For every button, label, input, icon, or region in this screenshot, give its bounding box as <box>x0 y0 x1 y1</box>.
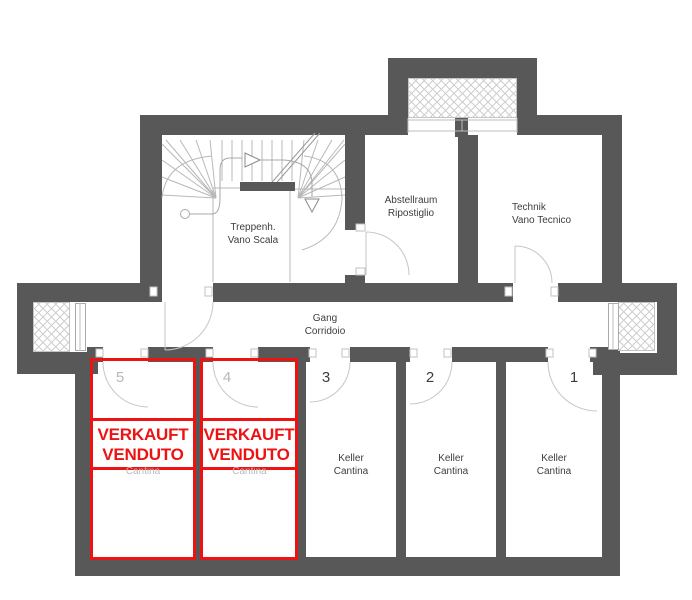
wall-segment <box>517 78 537 135</box>
sold-badge-line: VENDUTO <box>203 445 295 465</box>
room-label-line: Keller <box>406 452 496 465</box>
room-label-line: Ripostiglio <box>355 207 467 220</box>
room-label-stairwell: Treppenh. Vano Scala <box>183 221 323 247</box>
room-label-line: Treppenh. <box>183 221 323 234</box>
door-arc-stairwell-corridor <box>165 302 213 350</box>
stair-up-arrow-icon <box>245 153 260 167</box>
wall-segment <box>140 135 162 302</box>
wall-segment <box>388 58 537 78</box>
door-arc-storage <box>366 232 409 275</box>
wall-segment <box>602 353 620 576</box>
wall-segment <box>455 115 468 137</box>
lightwell-hatch-right <box>618 302 655 351</box>
room-label-line: Vano Scala <box>183 234 323 247</box>
wall-segment <box>496 347 506 557</box>
room-label-cellar-3: Keller Cantina <box>306 452 396 478</box>
wall-segment <box>213 283 513 302</box>
room-label-cellar-2: Keller Cantina <box>406 452 496 478</box>
stair-walk-line <box>181 158 313 219</box>
stair-treads <box>162 133 345 282</box>
room-label-line: Cantina <box>406 465 496 478</box>
room-label-corridor: Gang Corridoio <box>280 312 370 338</box>
sold-badge-line: VENDUTO <box>93 445 193 465</box>
sold-badge-room5: VERKAUFT VENDUTO <box>90 418 196 470</box>
room-label-technical: Technik Vano Tecnico <box>512 201 612 227</box>
room-number-2: 2 <box>419 370 441 386</box>
floor-plan: Treppenh. Vano Scala Abstellraum Riposti… <box>0 0 692 600</box>
lightwell-hatch-top <box>408 78 517 118</box>
room-label-line: Vano Tecnico <box>512 214 612 227</box>
room-label-cellar-1: Keller Cantina <box>509 452 599 478</box>
room-label-line: Keller <box>306 452 396 465</box>
room-label-cellar-4-partial: Cantina <box>203 466 296 478</box>
wall-segment <box>537 115 622 135</box>
stair-landing-edge <box>240 182 295 191</box>
lightwell-hatch-left <box>33 302 70 352</box>
wall-segment <box>140 115 388 135</box>
room-label-cellar-5-partial: Cantina <box>93 466 193 478</box>
wall-segment <box>657 283 677 375</box>
sold-badge-room4: VERKAUFT VENDUTO <box>200 418 298 470</box>
room-number-3: 3 <box>315 370 337 386</box>
stair-down-arrow-icon <box>305 199 319 212</box>
room-label-line: Technik <box>512 201 612 214</box>
wall-segment <box>388 78 408 135</box>
window-symbol-left <box>75 303 86 351</box>
sold-badge-line: VERKAUFT <box>93 425 193 445</box>
sold-badge-line: VERKAUFT <box>203 425 295 445</box>
room-label-line: Cantina <box>306 465 396 478</box>
wall-segment <box>396 347 406 557</box>
room-label-storage: Abstellraum Ripostiglio <box>355 194 467 220</box>
door-arc-technical <box>515 246 552 283</box>
room-label-line: Abstellraum <box>355 194 467 207</box>
room-number-1: 1 <box>563 370 585 386</box>
room-label-line: Corridoio <box>280 325 370 338</box>
wall-segment <box>17 283 158 302</box>
room-label-line: Keller <box>509 452 599 465</box>
room-label-line: Cantina <box>509 465 599 478</box>
window-symbol-right <box>608 303 619 350</box>
room-label-line: Gang <box>280 312 370 325</box>
